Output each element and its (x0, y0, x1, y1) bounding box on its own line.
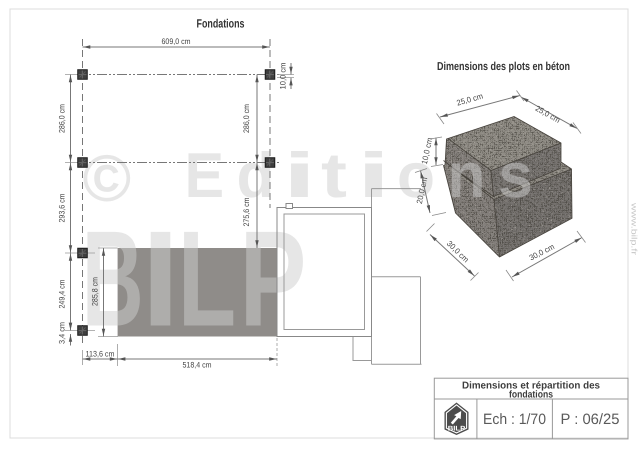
svg-text:BILP: BILP (448, 425, 466, 432)
svg-text:3,4 cm: 3,4 cm (58, 322, 67, 344)
svg-text:I: I (142, 203, 180, 355)
svg-text:285,8 cm: 285,8 cm (91, 277, 100, 306)
svg-text:25,0 cm: 25,0 cm (534, 104, 562, 125)
svg-text:Dimensions des plots en béton: Dimensions des plots en béton (437, 61, 570, 73)
svg-text:249,4 cm: 249,4 cm (58, 279, 67, 308)
svg-text:fondations: fondations (509, 390, 553, 401)
svg-text:10,0 cm: 10,0 cm (279, 62, 288, 89)
svg-text:E: E (185, 141, 225, 211)
svg-text:609,0 cm: 609,0 cm (162, 37, 191, 46)
svg-text:L: L (178, 203, 236, 355)
svg-text:286,0 cm: 286,0 cm (58, 104, 67, 133)
svg-text:P : 06/25: P : 06/25 (561, 411, 620, 428)
svg-text:286,0 cm: 286,0 cm (242, 104, 251, 133)
svg-text:s: s (498, 141, 533, 211)
svg-text:293,6 cm: 293,6 cm (58, 193, 67, 222)
svg-text:i: i (357, 141, 391, 211)
svg-text:www.bilp.fr: www.bilp.fr (630, 202, 639, 256)
svg-text:Ech : 1/70: Ech : 1/70 (483, 411, 546, 428)
svg-text:n: n (448, 141, 486, 211)
svg-text:30,0 cm: 30,0 cm (528, 242, 556, 262)
svg-text:275,6 cm: 275,6 cm (242, 197, 251, 226)
svg-text:i: i (283, 141, 317, 211)
svg-text:25,0 cm: 25,0 cm (456, 91, 485, 107)
svg-text:Fondations: Fondations (197, 17, 245, 31)
svg-text:518,4 cm: 518,4 cm (183, 361, 212, 370)
svg-text:t: t (321, 141, 347, 211)
svg-text:113,6 cm: 113,6 cm (86, 350, 115, 359)
